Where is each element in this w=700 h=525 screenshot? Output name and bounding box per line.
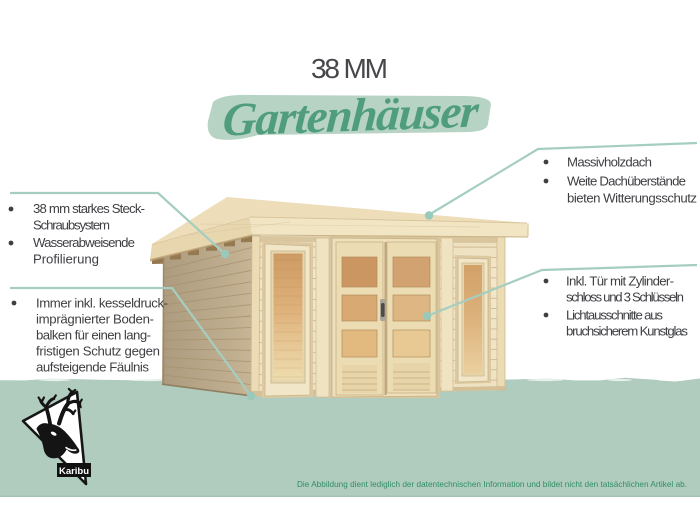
svg-text:Lichtausschnitte aus: Lichtausschnitte aus [566,308,663,323]
svg-text:imprägnierter Boden-: imprägnierter Boden- [36,312,154,327]
svg-text:balken für einen lang-: balken für einen lang- [36,328,151,343]
svg-text:Massivholzdach: Massivholzdach [567,155,652,170]
svg-text:Profilierung: Profilierung [33,252,99,267]
svg-text:Inkl. Tür mit Zylinder-: Inkl. Tür mit Zylinder- [566,274,674,289]
svg-text:fristigen Schutz gegen: fristigen Schutz gegen [36,344,160,359]
svg-text:Karibu: Karibu [59,466,89,477]
svg-text:Gartenhäuser: Gartenhäuser [221,86,481,147]
svg-text:38 MM: 38 MM [311,53,390,84]
svg-text:schloss und 3 Schlüsseln: schloss und 3 Schlüsseln [566,290,684,305]
svg-text:Wasserabweisende: Wasserabweisende [33,235,135,250]
svg-text:38 mm starkes Steck-: 38 mm starkes Steck- [33,201,145,216]
svg-text:Die Abbildung dient lediglich: Die Abbildung dient lediglich der datent… [297,480,687,489]
svg-text:bruchsicherem Kunstglas: bruchsicherem Kunstglas [566,324,688,339]
svg-text:bieten Witterungsschutz: bieten Witterungsschutz [567,191,697,206]
svg-text:aufsteigende Fäulnis: aufsteigende Fäulnis [36,360,149,375]
svg-text:Schraubsystem: Schraubsystem [33,218,110,233]
svg-text:Immer inkl. kesseldruck-: Immer inkl. kesseldruck- [36,296,168,311]
svg-text:Weite Dachüberstände: Weite Dachüberstände [567,174,686,189]
